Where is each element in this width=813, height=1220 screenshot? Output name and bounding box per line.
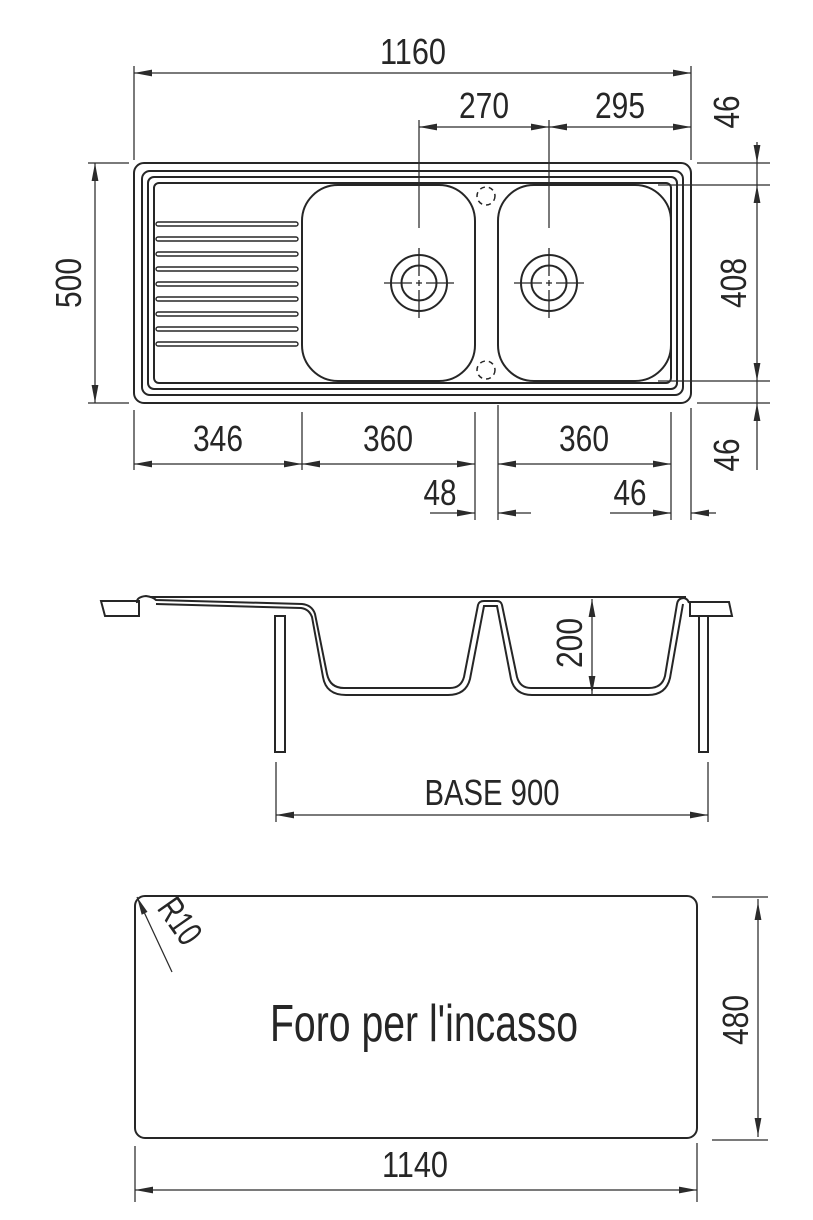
section-profile-outer — [156, 604, 683, 695]
sink-outer-edge — [134, 163, 691, 403]
plan-extension-lines — [88, 66, 770, 520]
cutout-label: Foro per l'incasso — [270, 995, 578, 1053]
cutout-view: R10 Foro per l'incasso 480 1140 — [135, 889, 768, 1202]
rib — [156, 282, 298, 286]
plan-arrowheads — [92, 70, 761, 517]
faucet-hole-bottom — [477, 361, 495, 379]
dim-drainboard-width: 346 — [193, 418, 243, 459]
dim-total-depth: 500 — [48, 258, 89, 308]
drainboard-ribs — [156, 222, 298, 346]
countertop-left — [101, 601, 139, 616]
sink-rim-line-3 — [154, 183, 671, 383]
sink-rim-line-1 — [142, 171, 683, 395]
rib — [156, 342, 298, 346]
faucet-hole-top — [477, 187, 495, 205]
section-view: 200 BASE 900 — [101, 596, 732, 822]
dim-bowl-gap: 48 — [424, 472, 457, 513]
dim-cutout-height: 480 — [715, 995, 756, 1045]
plan-view: 1160 270 295 500 46 408 46 346 360 360 4… — [48, 31, 770, 520]
dim-bowl1-width: 360 — [363, 418, 413, 459]
dim-drain-spacing: 270 — [459, 85, 509, 126]
sink-technical-drawing: 1160 270 295 500 46 408 46 346 360 360 4… — [0, 0, 813, 1220]
dim-bowl-depth-span: 408 — [713, 258, 754, 308]
sink-rim-line-2 — [148, 177, 677, 389]
rib — [156, 237, 298, 241]
countertop-right — [690, 602, 732, 616]
dim-rim-bottom: 46 — [706, 439, 747, 472]
rib — [156, 222, 298, 226]
drain-2 — [514, 248, 584, 318]
rib — [156, 297, 298, 301]
dim-bowl2-width: 360 — [559, 418, 609, 459]
drain-1 — [384, 248, 454, 318]
rib — [156, 267, 298, 271]
dim-drain-to-edge: 295 — [595, 85, 645, 126]
dim-right-margin: 46 — [614, 472, 647, 513]
section-profile-inner — [137, 596, 689, 688]
dim-cutout-width: 1140 — [382, 1144, 448, 1185]
rib — [156, 327, 298, 331]
cabinet-leg-right — [699, 616, 708, 752]
dim-total-width: 1160 — [380, 31, 446, 72]
rib — [156, 312, 298, 316]
cabinet-leg-left — [275, 616, 285, 752]
dim-bowl-depth: 200 — [549, 618, 590, 668]
technical-drawing-page: 1160 270 295 500 46 408 46 346 360 360 4… — [0, 0, 813, 1220]
rib — [156, 252, 298, 256]
dim-rim-top: 46 — [706, 96, 747, 129]
radius-leader-arrow — [137, 897, 148, 915]
dim-base-cabinet: BASE 900 — [425, 772, 560, 813]
